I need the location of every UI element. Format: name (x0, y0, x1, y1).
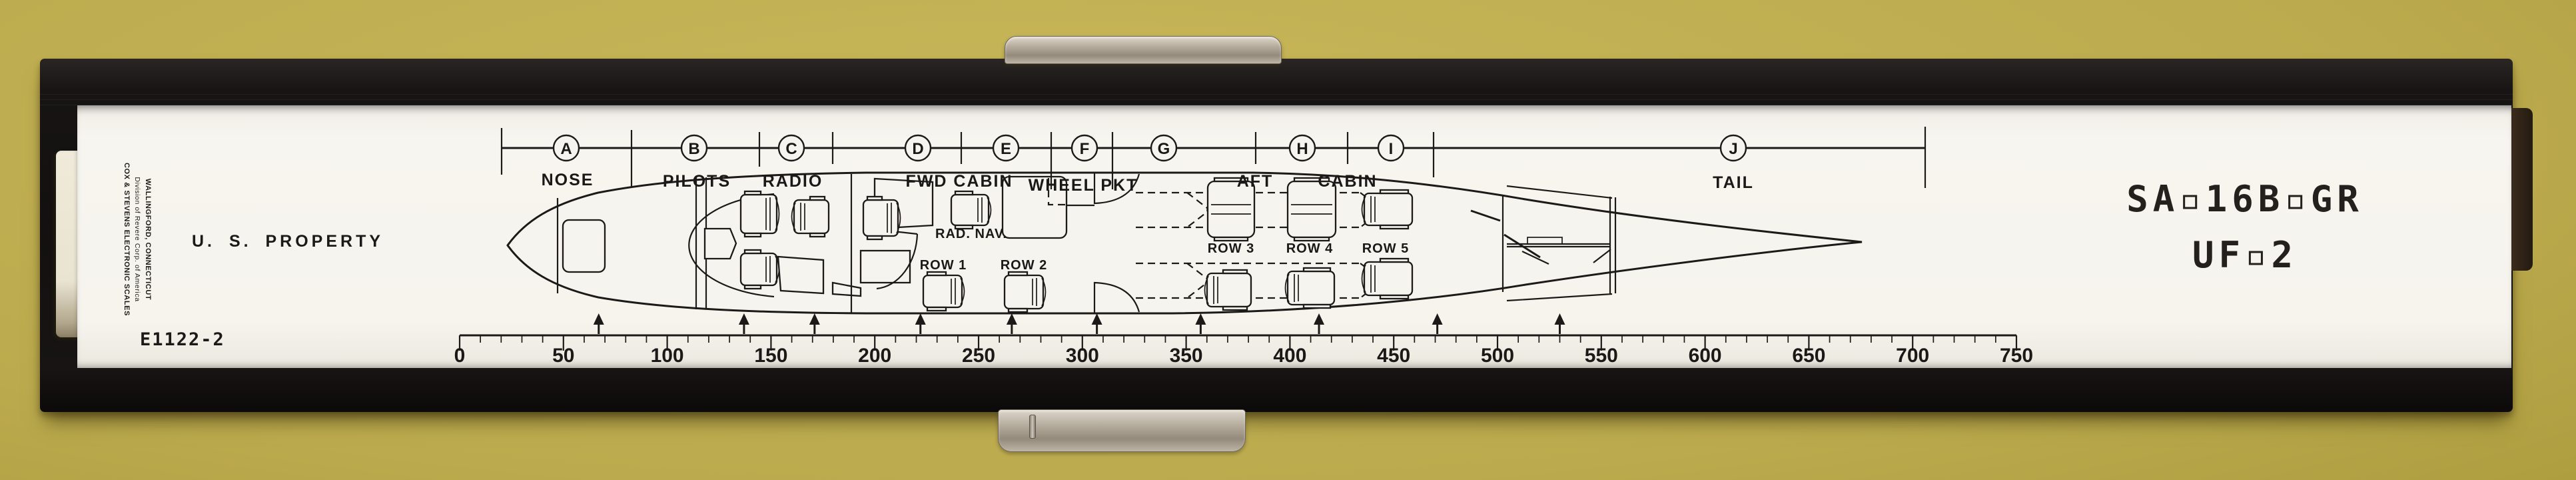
radio-rack (861, 251, 910, 283)
row-label: ROW 5 (1362, 241, 1410, 256)
station-arrow (1092, 313, 1102, 325)
station-letter-A: A (560, 140, 572, 158)
ruler-label: 550 (1585, 345, 1618, 367)
station-letter-D: D (912, 140, 923, 158)
station-letter-H: H (1296, 140, 1308, 158)
loading-diagram: ABCDEFGHIJNOSEPILOTSRADIOFWD CABINWHEEL … (0, 0, 2576, 480)
station-arrow (739, 313, 749, 325)
station-label: CABIN (1318, 172, 1377, 191)
station-letter-F: F (1080, 140, 1090, 158)
ruler-label: 350 (1170, 345, 1203, 367)
station-label: RADIO (763, 172, 823, 191)
seat (863, 200, 898, 236)
ruler-label: 250 (962, 345, 995, 367)
seat (741, 195, 777, 233)
seat (923, 275, 962, 307)
station-label: PILOTS (663, 172, 731, 191)
station-arrow (594, 313, 604, 325)
ruler-label: 50 (552, 345, 574, 367)
station-arrow (1554, 313, 1565, 325)
ruler-label: 300 (1066, 345, 1099, 367)
station-label: AFT (1237, 172, 1274, 191)
station-arrow (1432, 313, 1443, 325)
ruler-label: 500 (1481, 345, 1514, 367)
row-label: RAD. NAV. (935, 227, 1007, 241)
row-label: ROW 4 (1286, 241, 1334, 256)
ruler-label: 650 (1792, 345, 1825, 367)
ruler-label: 750 (2000, 345, 2033, 367)
slide-rule-photo: COX & STEVENS ELECTRONIC SCALES Division… (0, 0, 2576, 480)
ruler-label: 600 (1689, 345, 1722, 367)
station-letter-B: B (688, 140, 699, 158)
control-console (705, 229, 736, 259)
ruler-label: 100 (651, 345, 684, 367)
ruler-label: 200 (858, 345, 891, 367)
ruler-label: 150 (754, 345, 787, 367)
station-letter-E: E (1001, 140, 1011, 158)
aircraft-plan-drawing (508, 173, 1862, 313)
station-arrow (809, 313, 820, 325)
row-label: ROW 1 (920, 258, 967, 273)
station-letter-C: C (785, 140, 797, 158)
seat (1005, 275, 1043, 309)
ruler-label: 700 (1896, 345, 1929, 367)
station-label: NOSE (542, 171, 594, 189)
station-arrow (915, 313, 926, 325)
station-letter-I: I (1389, 140, 1394, 158)
row-label: ROW 3 (1208, 241, 1255, 256)
station-letter-J: J (1729, 140, 1737, 158)
cockpit-table (778, 257, 823, 293)
seat (794, 200, 829, 233)
station-letter-G: G (1158, 140, 1170, 158)
row-label: ROW 2 (1001, 258, 1048, 273)
station-arrow (1314, 313, 1324, 325)
nose-box (563, 220, 605, 272)
station-arrow (1007, 313, 1017, 325)
ruler-label: 450 (1377, 345, 1410, 367)
station-label: FWD CABIN (905, 172, 1013, 191)
station-label: WHEEL PKT (1029, 176, 1138, 195)
station-arrow (1195, 313, 1206, 325)
seat (951, 195, 989, 225)
station-label: TAIL (1713, 173, 1754, 192)
ruler-label: 0 (454, 345, 466, 367)
station-ruler: 0501001502002503003504004505005506006507… (454, 313, 2033, 367)
seat (741, 253, 777, 285)
ruler-label: 400 (1273, 345, 1306, 367)
